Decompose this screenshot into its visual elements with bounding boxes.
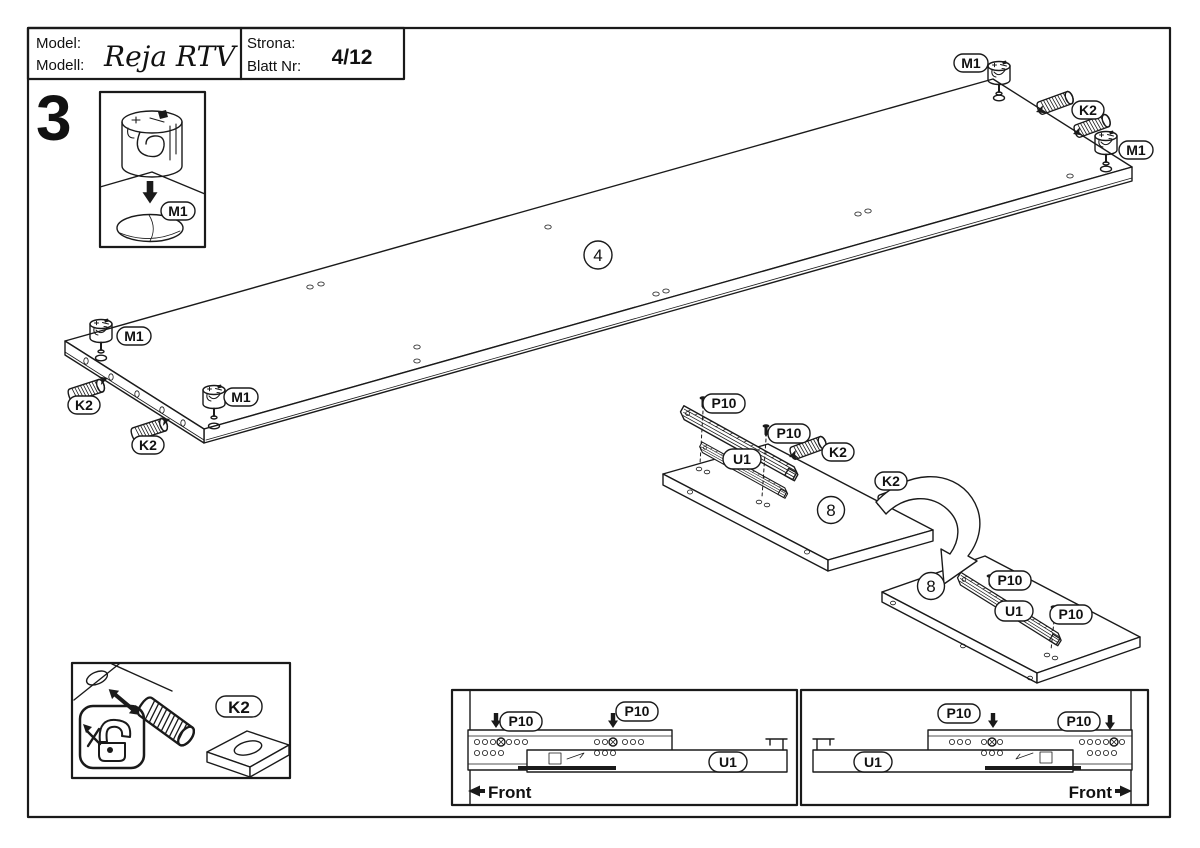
diagram-canvas: Model: Modell: Reja RTV Strona: Blatt Nr…: [0, 0, 1200, 848]
screw-label: P10: [938, 704, 980, 723]
page-label-de: Blatt Nr:: [247, 58, 301, 75]
screw-label: P10: [500, 712, 542, 731]
svg-text:M1: M1: [124, 328, 144, 344]
screw-label: P10: [1050, 605, 1092, 624]
model-name: Reja RTV: [103, 40, 238, 73]
screw-label: P10: [616, 702, 658, 721]
svg-text:K2: K2: [1079, 102, 1097, 118]
panel-number-top: 4: [584, 241, 612, 269]
svg-text:8: 8: [826, 501, 835, 520]
svg-text:K2: K2: [829, 444, 847, 460]
title-block: Model: Modell: Reja RTV Strona: Blatt Nr…: [28, 28, 404, 79]
svg-text:P10: P10: [998, 572, 1023, 588]
svg-text:P10: P10: [777, 425, 802, 441]
front-label: Front: [1069, 783, 1113, 802]
svg-text:4: 4: [593, 246, 602, 265]
edge-hole: [85, 668, 110, 688]
cam-label: M1: [224, 388, 258, 406]
svg-text:K2: K2: [139, 437, 157, 453]
model-label-de: Modell:: [36, 57, 84, 74]
dowel-label: K2: [1072, 101, 1104, 119]
svg-text:U1: U1: [719, 754, 737, 770]
svg-text:P10: P10: [509, 713, 534, 729]
no-glue-icon: [80, 706, 144, 768]
panel-number-side: 8: [918, 573, 945, 600]
panel-number-side: 8: [818, 497, 845, 524]
svg-text:U1: U1: [1005, 603, 1023, 619]
dowel-label: K2: [68, 396, 100, 414]
svg-text:P10: P10: [1067, 713, 1092, 729]
cam-label: M1: [954, 54, 988, 72]
cam-label: M1: [1119, 141, 1153, 159]
svg-text:M1: M1: [168, 203, 188, 219]
screw-label: P10: [1058, 712, 1100, 731]
cam-lock-icon: [122, 110, 182, 177]
dowel-detail-inset: [72, 663, 290, 778]
svg-text:K2: K2: [75, 397, 93, 413]
slide-label: U1: [995, 601, 1033, 621]
screw-label: P10: [768, 424, 810, 443]
svg-text:P10: P10: [625, 703, 650, 719]
screw-position-arrow: [988, 713, 998, 728]
dowel-label: K2: [875, 472, 907, 490]
svg-text:P10: P10: [712, 395, 737, 411]
svg-text:8: 8: [926, 577, 935, 596]
front-arrow-icon: [1115, 786, 1132, 797]
svg-text:P10: P10: [947, 705, 972, 721]
slide-label: U1: [709, 752, 747, 772]
svg-text:M1: M1: [961, 55, 981, 71]
screw-position-arrow: [1105, 715, 1115, 730]
screw-label: P10: [989, 571, 1031, 590]
dowel-label: K2: [132, 436, 164, 454]
front-label: Front: [488, 783, 532, 802]
step-number: 3: [36, 82, 72, 154]
cam-label: M1: [117, 327, 151, 345]
svg-text:P10: P10: [1059, 606, 1084, 622]
slide-label: U1: [854, 752, 892, 772]
wood-block-icon: [207, 731, 289, 777]
page-number: 4/12: [332, 46, 373, 69]
svg-text:K2: K2: [228, 698, 250, 717]
page-label-pl: Strona:: [247, 35, 295, 52]
assembly-instruction-sheet: Model: Modell: Reja RTV Strona: Blatt Nr…: [0, 0, 1200, 848]
dowel-label: K2: [822, 443, 854, 461]
insert-arrow-icon: [143, 181, 158, 204]
svg-text:U1: U1: [864, 754, 882, 770]
svg-text:K2: K2: [882, 473, 900, 489]
dowel-label: K2: [216, 696, 262, 717]
screw-label: P10: [703, 394, 745, 413]
svg-text:U1: U1: [733, 451, 751, 467]
svg-text:M1: M1: [1126, 142, 1146, 158]
slide-label: U1: [723, 449, 761, 469]
svg-text:M1: M1: [231, 389, 251, 405]
cam-label: M1: [161, 202, 195, 220]
model-label-pl: Model:: [36, 35, 81, 52]
cam-detail-inset: [100, 92, 205, 247]
